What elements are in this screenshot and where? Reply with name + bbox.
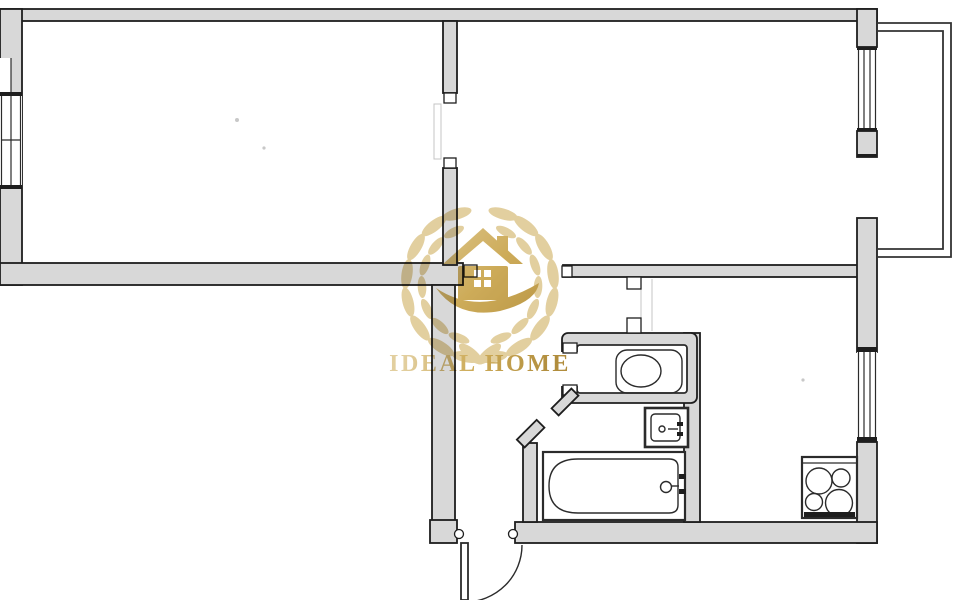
entrance-hinge-right bbox=[509, 530, 518, 539]
right-wall-upper bbox=[857, 218, 877, 352]
hall-kitchen-wall bbox=[563, 265, 858, 277]
entrance-door-leaf bbox=[461, 543, 468, 600]
watermark-text: IDEAL HOME bbox=[389, 351, 571, 377]
sink-tap-handle-bottom bbox=[677, 432, 683, 436]
bathtub-tap-mark-top bbox=[679, 474, 686, 479]
house-body bbox=[458, 266, 508, 300]
floor-plan-image: IDEAL HOME bbox=[0, 0, 959, 600]
vent-box-lower bbox=[627, 318, 641, 333]
divider-door-jamb-top bbox=[444, 93, 456, 103]
top-wall bbox=[0, 9, 877, 21]
wc-enclosure bbox=[552, 333, 697, 415]
sink-tap-handle-top bbox=[677, 422, 683, 426]
window-recess bbox=[0, 58, 11, 95]
entrance-door-swing-arc bbox=[465, 545, 522, 600]
right-wall-window-block bbox=[857, 131, 877, 157]
stove-front-edge bbox=[804, 512, 855, 517]
balcony-railing bbox=[877, 23, 951, 257]
top-right-corner-column bbox=[857, 9, 877, 47]
floorplan-canvas: IDEAL HOME bbox=[0, 0, 959, 600]
bottom-wall bbox=[515, 522, 877, 543]
divider-door-leaf bbox=[434, 104, 441, 159]
watermark-logo: IDEAL HOME bbox=[389, 205, 571, 377]
bottom-left-wall bbox=[0, 263, 463, 285]
bathroom-left-wall bbox=[523, 443, 537, 522]
vent-box-upper bbox=[627, 277, 641, 289]
walls bbox=[0, 9, 877, 543]
corridor-wall-end-block bbox=[430, 520, 457, 543]
entrance-hinge-left bbox=[455, 530, 464, 539]
vent-boxes bbox=[627, 277, 641, 333]
hall-door-jamb-right bbox=[562, 266, 572, 277]
bathtub bbox=[543, 452, 686, 520]
sink bbox=[645, 408, 688, 447]
entrance-door bbox=[455, 530, 523, 600]
stove bbox=[802, 457, 857, 518]
kitchen-window bbox=[857, 347, 877, 442]
divider-wall-upper bbox=[443, 21, 457, 93]
bathtub-tap-mark-bottom bbox=[679, 489, 686, 494]
bathtub-outer bbox=[543, 452, 685, 520]
divider-door-jamb-bottom bbox=[444, 158, 456, 168]
